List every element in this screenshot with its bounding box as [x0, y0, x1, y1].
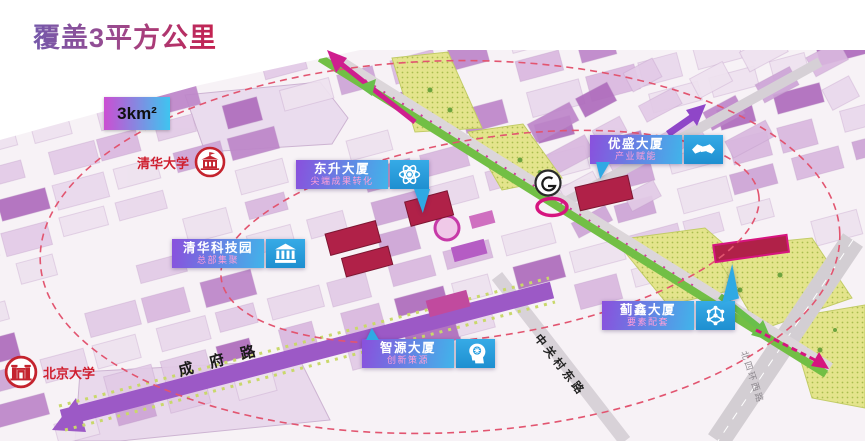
city-block [748, 0, 789, 24]
building-tagline: 总部集聚 [179, 255, 257, 266]
city-block [785, 8, 833, 48]
page-title: 覆盖3平方公里 [33, 16, 217, 55]
callout-text: 东升大厦 尖端成果转化 [296, 160, 388, 189]
city-block [768, 0, 810, 17]
city-map: 成府路 中关村东路 北四环西路 [0, 0, 865, 441]
school-icon [194, 146, 226, 178]
area-badge: 3km² [104, 97, 170, 130]
city-block [507, 18, 558, 54]
city-block [813, 7, 851, 33]
city-block [628, 0, 682, 18]
city-block [124, 0, 173, 12]
building-tagline: 产业赋能 [597, 151, 675, 162]
city-block [179, 0, 223, 2]
city-block [440, 0, 496, 38]
city-block [261, 16, 309, 49]
peking-university-marker: 北京大学 [4, 355, 95, 389]
circular-plaza [435, 216, 459, 240]
brain-icon [456, 339, 495, 368]
molecule-icon [696, 301, 735, 330]
tsinghua-university-label: 清华大学 [137, 153, 189, 172]
callout-zhiyuan: 智源大厦 创新策源 [362, 339, 495, 368]
building-tagline: 要素配套 [609, 317, 687, 328]
city-block [0, 28, 8, 63]
callout-text: 清华科技园 总部集聚 [172, 239, 264, 268]
callout-text: 优盛大厦 产业赋能 [590, 135, 682, 164]
city-block [676, 0, 723, 2]
slide: 成府路 中关村东路 北四环西路 覆盖3平方公里 3km² 清华大学 [0, 0, 865, 441]
building-name: 优盛大厦 [597, 137, 675, 151]
handshake-icon [684, 135, 723, 164]
city-block [719, 5, 763, 43]
city-block [758, 17, 813, 50]
city-block [21, 80, 69, 111]
callout-text: 智源大厦 创新策源 [362, 339, 454, 368]
building-name: 蓟鑫大厦 [609, 303, 687, 317]
peking-university-label: 北京大学 [43, 363, 95, 382]
tsinghua-university-marker: 清华大学 [137, 146, 226, 178]
city-block [377, 0, 427, 16]
building-tagline: 尖端成果转化 [303, 176, 381, 187]
city-block [314, 0, 367, 34]
city-block [0, 97, 4, 125]
subway-icon [536, 171, 561, 196]
callout-thu-science-park: 清华科技园 总部集聚 [172, 239, 305, 268]
callout-dongsheng: 东升大厦 尖端成果转化 [296, 160, 429, 189]
gate-icon [4, 355, 38, 389]
city-block [805, 0, 847, 7]
building-name: 清华科技园 [179, 241, 257, 255]
atom-icon [390, 160, 429, 189]
city-block [687, 2, 740, 33]
callout-jixin: 蓟鑫大厦 要素配套 [602, 301, 735, 330]
callout-yousheng: 优盛大厦 产业赋能 [590, 135, 723, 164]
building-tagline: 创新策源 [369, 355, 447, 366]
city-block [560, 0, 608, 2]
building-name: 智源大厦 [369, 341, 447, 355]
callout-text: 蓟鑫大厦 要素配套 [602, 301, 694, 330]
building-name: 东升大厦 [303, 162, 381, 176]
bank-icon [266, 239, 305, 268]
